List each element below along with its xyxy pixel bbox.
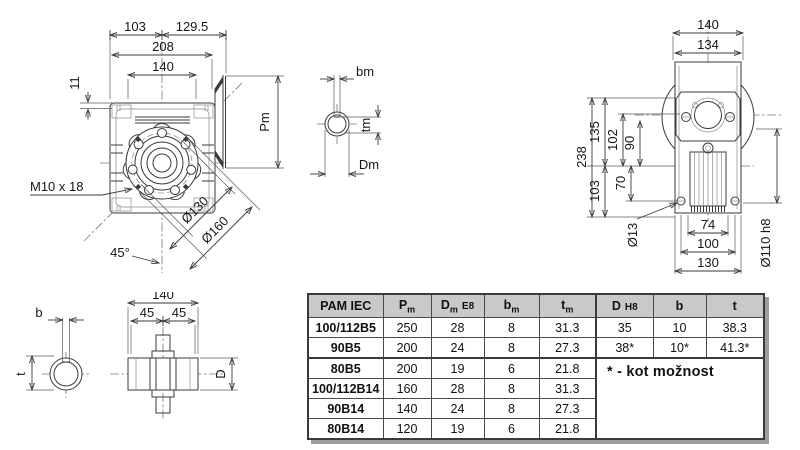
dim-d13-label: Ø13	[625, 223, 640, 248]
side-view-drawing: 140 134 238 135 103 102 90 70 Ø13 74 100…	[540, 0, 800, 300]
cell-bm: 8	[484, 338, 539, 359]
cell-dm: 24	[431, 399, 484, 419]
cell-t: 41.3*	[706, 338, 764, 359]
cell-dm: 28	[431, 379, 484, 399]
cell-b: 10	[653, 318, 706, 338]
cell-bm: 8	[484, 318, 539, 338]
dim-45-right-label: 45	[172, 305, 186, 320]
cell-pm: 250	[383, 318, 431, 338]
cell-tm: 21.8	[539, 358, 596, 379]
side-view-body	[662, 62, 754, 213]
dim-100-label: 100	[697, 236, 719, 251]
dim-d160-label: Ø160	[198, 213, 231, 246]
row-name: 80B5	[308, 358, 383, 379]
dim-74-label: 74	[701, 217, 715, 232]
front-view-drawing: 103 129.5 208 140 11 M10 x 18 45° Ø130 Ø…	[20, 15, 300, 295]
dim-140-hub-label: 140	[152, 292, 174, 302]
dim-102-label: 102	[605, 129, 620, 151]
asterisk-note: * - kot možnost	[607, 364, 714, 380]
cell-dm: 28	[431, 318, 484, 338]
cell-d: 35	[596, 318, 653, 338]
cell-b: 10*	[653, 338, 706, 359]
cell-pm: 200	[383, 358, 431, 379]
header-tm: tm	[539, 294, 596, 318]
motor-shaft-section-labels: bm tm Dm	[356, 64, 379, 172]
header-bm: bm	[484, 294, 539, 318]
dim-d110-h8-label: Ø110 h8	[758, 219, 773, 268]
motor-shaft-section-shape	[317, 75, 357, 144]
row-name: 100/112B14	[308, 379, 383, 399]
dim-d-label: D	[213, 369, 228, 378]
dim-tm-label: tm	[358, 118, 373, 132]
motor-shaft-section-drawing: bm tm Dm	[295, 55, 405, 195]
cell-pm: 140	[383, 399, 431, 419]
cell-bm: 8	[484, 399, 539, 419]
cell-pm: 120	[383, 419, 431, 440]
header-t: t	[706, 294, 764, 318]
dim-t-label: t	[13, 372, 28, 376]
cell-t: 38.3	[706, 318, 764, 338]
header-pam-iec: PAM IEC	[308, 294, 383, 318]
cell-tm: 31.3	[539, 318, 596, 338]
dim-140-label: 140	[152, 59, 174, 74]
table-row: 100/112B5 250 28 8 31.3 35 10 38.3	[308, 318, 764, 338]
cell-dm: 19	[431, 358, 484, 379]
cell-tm: 21.8	[539, 419, 596, 440]
dim-238-label: 238	[574, 146, 589, 168]
header-pm: Pm	[383, 294, 431, 318]
dim-dm-label: Dm	[359, 157, 379, 172]
dim-103-label: 103	[124, 19, 146, 34]
dim-130-label: 130	[697, 255, 719, 270]
row-name: 80B14	[308, 419, 383, 440]
angle-45-label: 45°	[110, 245, 130, 260]
header-dm-e8: DmE8	[431, 294, 484, 318]
cell-bm: 6	[484, 358, 539, 379]
dim-140-top-label: 140	[697, 17, 719, 32]
dim-45-left-label: 45	[140, 305, 154, 320]
table-note-cell: * - kot možnost	[596, 358, 764, 439]
cell-pm: 160	[383, 379, 431, 399]
cell-pm: 200	[383, 338, 431, 359]
cell-tm: 27.3	[539, 338, 596, 359]
gearbox-datasheet-page: 103 129.5 208 140 11 M10 x 18 45° Ø130 Ø…	[0, 0, 800, 450]
dim-bm-label: bm	[356, 64, 374, 79]
table-header-row: PAM IEC Pm DmE8 bm tm DH8 b t	[308, 294, 764, 318]
dim-208-label: 208	[152, 39, 174, 54]
dim-135-label: 135	[587, 121, 602, 143]
bore-section-circle	[42, 318, 90, 398]
hollow-shaft-hub	[110, 327, 225, 420]
cell-d: 38*	[596, 338, 653, 359]
hollow-shaft-drawing: b t 140 45 45 D	[10, 292, 260, 447]
table-row: 80B5 200 19 6 21.8 * - kot možnost	[308, 358, 764, 379]
dim-129-5-label: 129.5	[176, 19, 209, 34]
dim-11-label: 11	[67, 76, 82, 90]
cell-tm: 27.3	[539, 399, 596, 419]
cell-dm: 19	[431, 419, 484, 440]
table-row: 90B5 200 24 8 27.3 38* 10* 41.3*	[308, 338, 764, 359]
dim-70-label: 70	[613, 176, 628, 190]
pam-iec-spec-table: PAM IEC Pm DmE8 bm tm DH8 b t 100/112B5 …	[307, 293, 765, 440]
motor-flange-side-profile	[215, 75, 226, 169]
row-name: 90B5	[308, 338, 383, 359]
dim-b-label: b	[35, 305, 42, 320]
header-b: b	[653, 294, 706, 318]
dim-134-label: 134	[697, 37, 719, 52]
row-name: 100/112B5	[308, 318, 383, 338]
header-d-h8: DH8	[596, 294, 653, 318]
cell-bm: 6	[484, 419, 539, 440]
dim-90-label: 90	[622, 136, 637, 150]
cell-tm: 31.3	[539, 379, 596, 399]
thread-callout-label: M10 x 18	[30, 179, 83, 194]
dim-103-side-label: 103	[587, 180, 602, 202]
dim-pm-label: Pm	[257, 112, 272, 132]
cell-bm: 8	[484, 379, 539, 399]
row-name: 90B14	[308, 399, 383, 419]
cell-dm: 24	[431, 338, 484, 359]
